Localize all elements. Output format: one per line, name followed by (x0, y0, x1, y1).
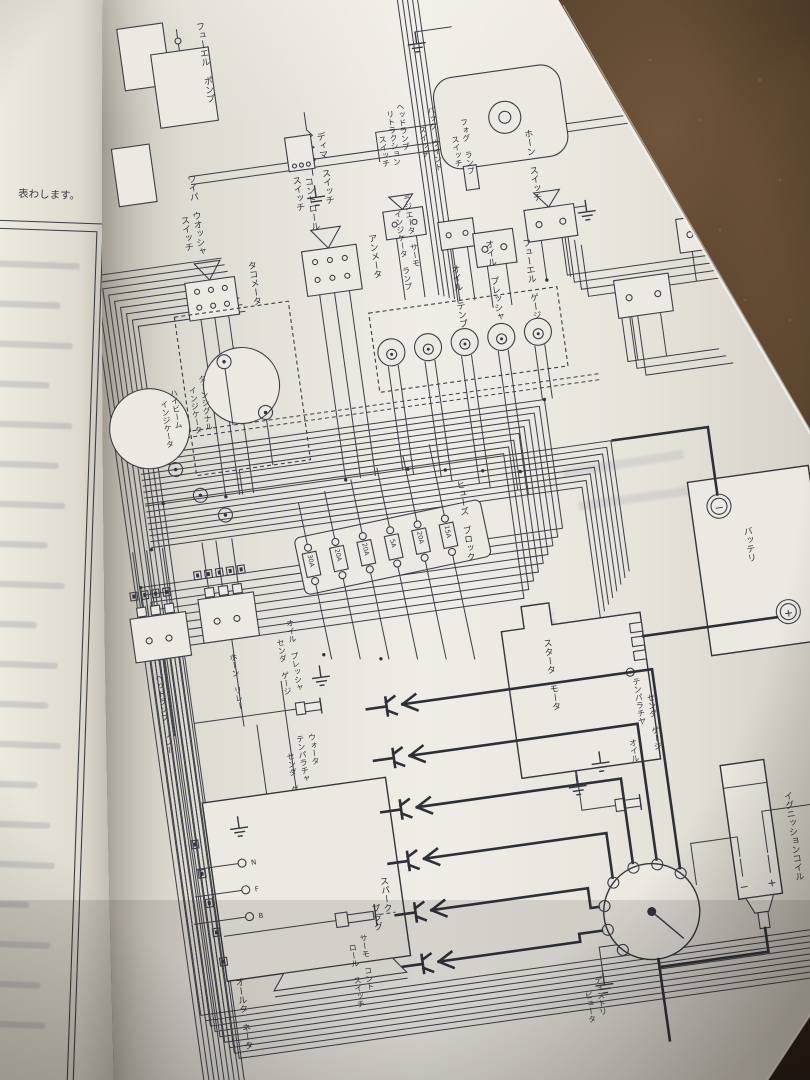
bottom-shade (0, 900, 810, 1080)
manual-photo-svg: 表わします。 (0, 0, 810, 1080)
photo-of-open-wiring-manual: 表わします。 (0, 0, 810, 1080)
